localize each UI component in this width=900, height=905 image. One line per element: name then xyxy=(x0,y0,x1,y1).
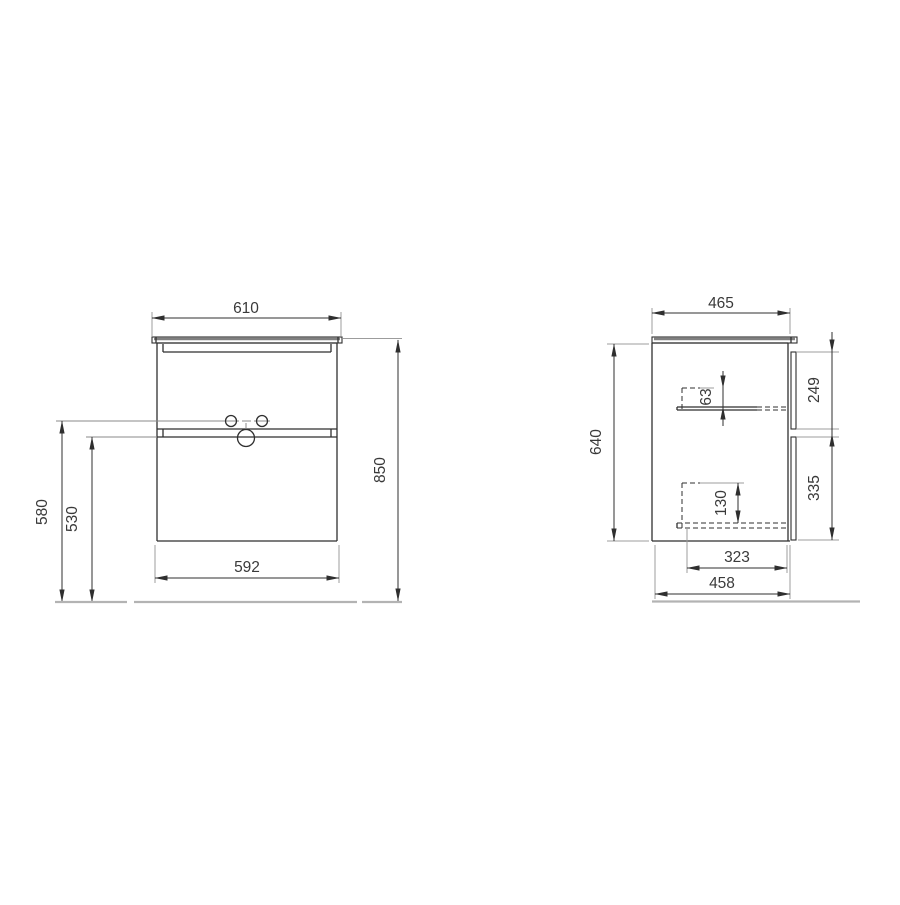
side-drawer1-hidden-box xyxy=(677,388,788,410)
dim-side-drawer2-inner: 130 xyxy=(700,483,744,523)
vanity-drawing: 610 850 580 530 592 xyxy=(0,0,900,900)
front-handle-holes xyxy=(223,416,270,447)
drawer1-front-profile xyxy=(791,352,796,429)
technical-drawing-canvas: 610 850 580 530 592 xyxy=(0,0,900,900)
side-drawer2-hidden-box xyxy=(677,483,788,528)
dim-front-height-drawer2: 530 xyxy=(64,437,157,602)
dim-side-drawer1-inner: 63 xyxy=(698,371,723,426)
front-cabinet-body xyxy=(157,343,337,541)
dimension-value-640: 640 xyxy=(588,429,605,455)
side-countertop xyxy=(652,337,797,343)
dimension-value-850: 850 xyxy=(372,457,389,483)
dim-front-width-top: 610 xyxy=(152,300,341,336)
dimension-value-458: 458 xyxy=(709,575,735,592)
dim-side-depth-top: 465 xyxy=(652,295,790,334)
dim-side-drawer-fronts: 249 335 xyxy=(797,332,839,540)
dimension-value-249: 249 xyxy=(806,377,823,403)
dimension-value-530: 530 xyxy=(64,506,81,532)
dimension-value-130: 130 xyxy=(713,490,730,516)
dim-front-height-handle: 580 xyxy=(34,421,225,602)
dimension-value-63: 63 xyxy=(698,388,715,405)
drawer2-front-profile xyxy=(791,437,796,540)
dimension-value-610: 610 xyxy=(233,300,259,317)
drain-hole xyxy=(238,430,255,447)
dimension-value-592: 592 xyxy=(234,559,260,576)
dimension-value-335: 335 xyxy=(806,475,823,501)
dim-side-depth-inner: 323 xyxy=(687,527,787,573)
side-view: 465 640 63 249 335 xyxy=(588,295,839,599)
dim-front-width-bottom: 592 xyxy=(155,545,339,583)
dimension-value-323: 323 xyxy=(724,549,750,566)
dim-side-depth-bottom: 458 xyxy=(655,545,790,599)
dim-front-height-overall: 850 xyxy=(343,339,402,602)
front-view: 610 850 580 530 592 xyxy=(34,300,402,602)
front-countertop xyxy=(152,337,342,343)
dimension-value-580: 580 xyxy=(34,499,51,525)
dim-side-height-body: 640 xyxy=(588,344,649,541)
floor-line xyxy=(55,602,860,603)
dimension-value-465: 465 xyxy=(708,295,734,312)
